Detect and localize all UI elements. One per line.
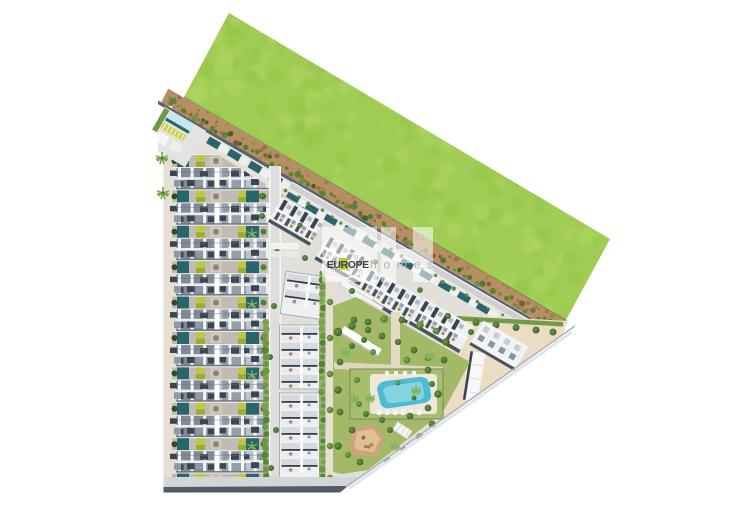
svg-text:homes: homes [370,257,440,271]
svg-text:EUROPE: EUROPE [327,259,369,271]
